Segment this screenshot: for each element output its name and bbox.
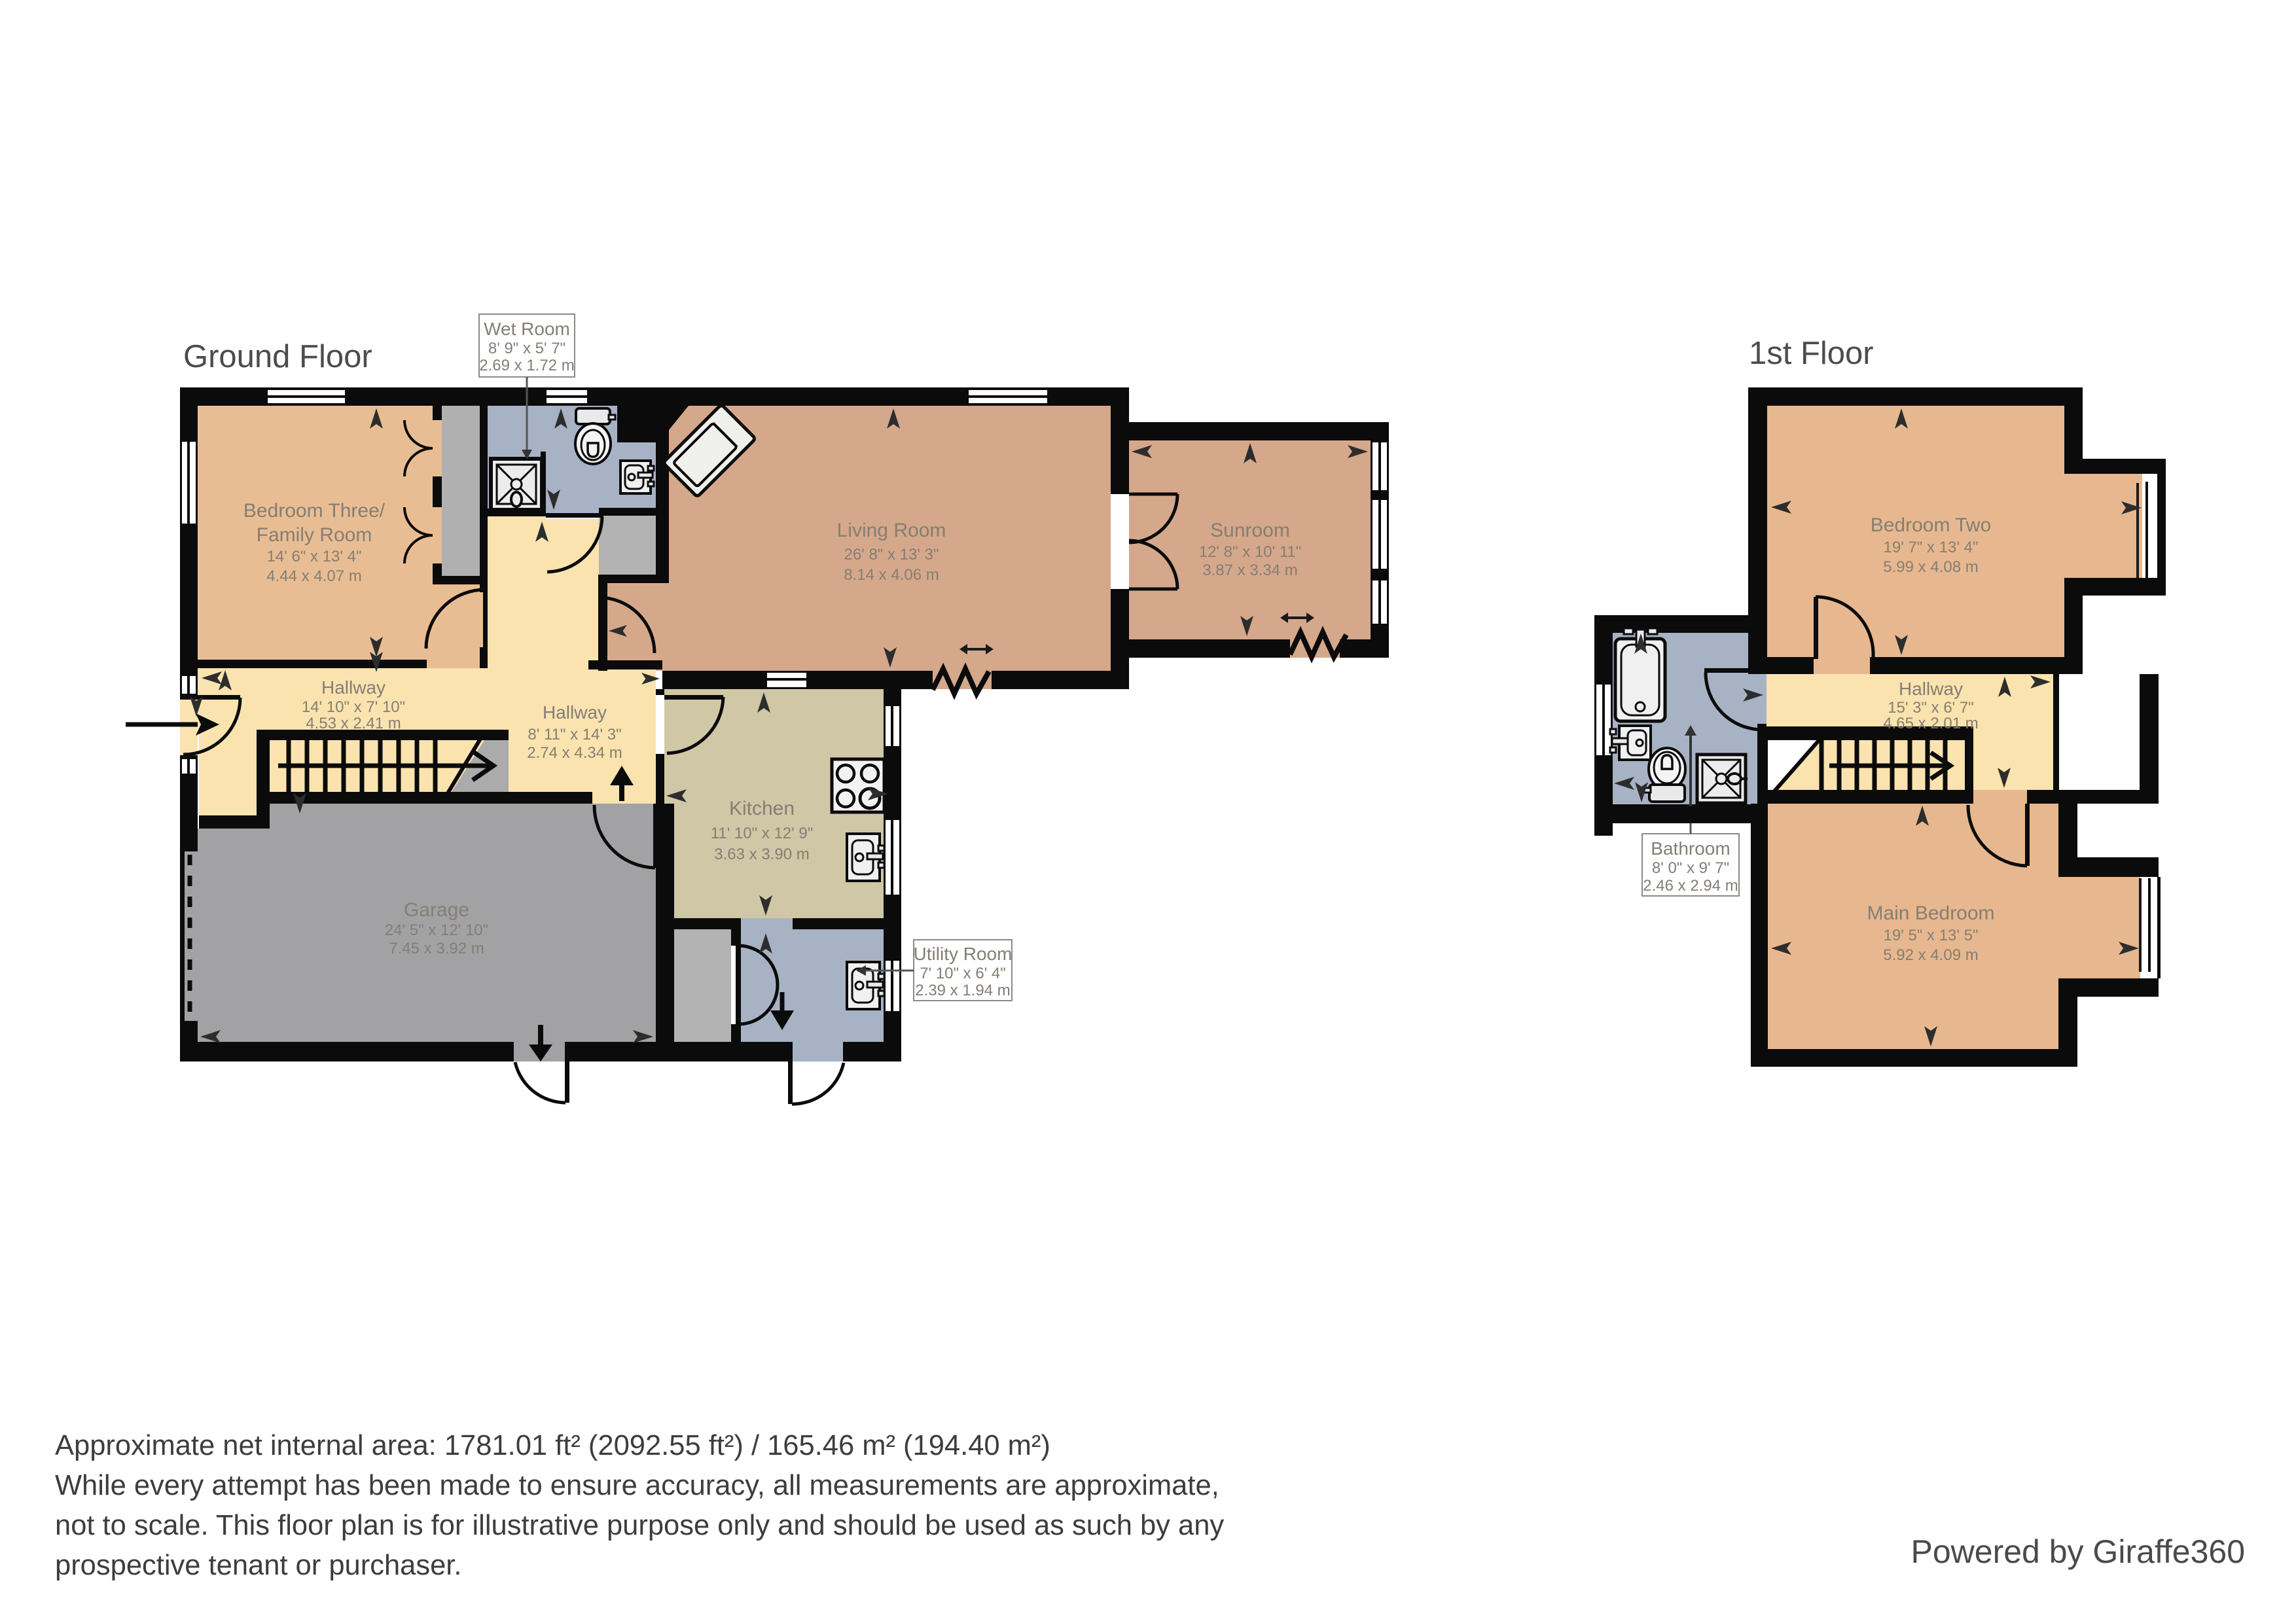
svg-text:Bathroom: Bathroom — [1651, 838, 1730, 859]
svg-text:24' 5" x 12' 10": 24' 5" x 12' 10" — [385, 921, 488, 939]
svg-text:2.39 x 1.94 m: 2.39 x 1.94 m — [915, 982, 1010, 999]
svg-text:15' 3" x 6' 7": 15' 3" x 6' 7" — [1888, 699, 1974, 717]
svg-text:5.99 x 4.08 m: 5.99 x 4.08 m — [1883, 558, 1978, 576]
svg-text:Sunroom: Sunroom — [1210, 520, 1290, 541]
svg-text:1st Floor: 1st Floor — [1749, 336, 1874, 371]
svg-text:Hallway: Hallway — [543, 702, 607, 722]
svg-text:Main Bedroom: Main Bedroom — [1867, 902, 1994, 924]
svg-text:5.92 x 4.09 m: 5.92 x 4.09 m — [1883, 946, 1978, 964]
svg-text:Hallway: Hallway — [321, 677, 386, 698]
svg-text:3.63 x 3.90 m: 3.63 x 3.90 m — [714, 846, 809, 863]
svg-text:4.65 x 2.01 m: 4.65 x 2.01 m — [1883, 715, 1978, 732]
svg-text:prospective tenant or purchase: prospective tenant or purchaser. — [55, 1550, 461, 1581]
svg-text:Bedroom Three/: Bedroom Three/ — [243, 500, 386, 522]
svg-text:3.87 x 3.34 m: 3.87 x 3.34 m — [1202, 562, 1297, 579]
svg-text:11' 10" x 12' 9": 11' 10" x 12' 9" — [711, 825, 814, 842]
svg-text:26' 8" x 13' 3": 26' 8" x 13' 3" — [844, 546, 939, 563]
svg-text:Family Room: Family Room — [257, 524, 372, 546]
svg-text:Hallway: Hallway — [1899, 679, 1963, 699]
svg-text:While every attempt has been m: While every attempt has been made to ens… — [55, 1470, 1219, 1501]
svg-text:4.44 x 4.07 m: 4.44 x 4.07 m — [266, 567, 361, 585]
svg-text:Kitchen: Kitchen — [729, 798, 795, 819]
svg-text:14' 10" x 7' 10": 14' 10" x 7' 10" — [302, 698, 405, 716]
svg-text:8' 0" x 9' 7": 8' 0" x 9' 7" — [1652, 859, 1729, 877]
svg-text:7' 10" x 6' 4": 7' 10" x 6' 4" — [920, 965, 1006, 982]
svg-text:2.74 x 4.34 m: 2.74 x 4.34 m — [527, 744, 622, 762]
svg-text:14' 6" x 13' 4": 14' 6" x 13' 4" — [267, 548, 362, 565]
svg-text:not to scale. This floor plan: not to scale. This floor plan is for ill… — [55, 1510, 1224, 1541]
svg-text:2.69 x 1.72 m: 2.69 x 1.72 m — [479, 357, 574, 374]
svg-text:Garage: Garage — [404, 899, 469, 921]
svg-text:Bedroom Two: Bedroom Two — [1871, 514, 1992, 536]
svg-text:Living Room: Living Room — [837, 520, 946, 541]
svg-text:Utility Room: Utility Room — [914, 944, 1013, 964]
svg-text:4.53 x 2.41 m: 4.53 x 2.41 m — [306, 715, 401, 732]
svg-text:Ground Floor: Ground Floor — [183, 339, 372, 374]
svg-text:Approximate net internal area:: Approximate net internal area: 1781.01 f… — [55, 1430, 1050, 1461]
svg-text:8.14 x 4.06 m: 8.14 x 4.06 m — [844, 566, 939, 584]
svg-text:2.46 x 2.94 m: 2.46 x 2.94 m — [1643, 877, 1738, 895]
svg-text:8' 11" x 14' 3": 8' 11" x 14' 3" — [528, 726, 621, 743]
svg-text:7.45 x 3.92 m: 7.45 x 3.92 m — [389, 940, 484, 957]
svg-text:19' 5" x 13' 5": 19' 5" x 13' 5" — [1884, 927, 1979, 944]
svg-text:Wet Room: Wet Room — [484, 319, 570, 339]
svg-text:Powered by Giraffe360: Powered by Giraffe360 — [1911, 1533, 2246, 1570]
svg-text:12' 8" x 10' 11": 12' 8" x 10' 11" — [1199, 543, 1302, 561]
svg-text:8' 9" x 5' 7": 8' 9" x 5' 7" — [488, 340, 565, 357]
svg-text:19' 7" x 13' 4": 19' 7" x 13' 4" — [1884, 539, 1979, 556]
